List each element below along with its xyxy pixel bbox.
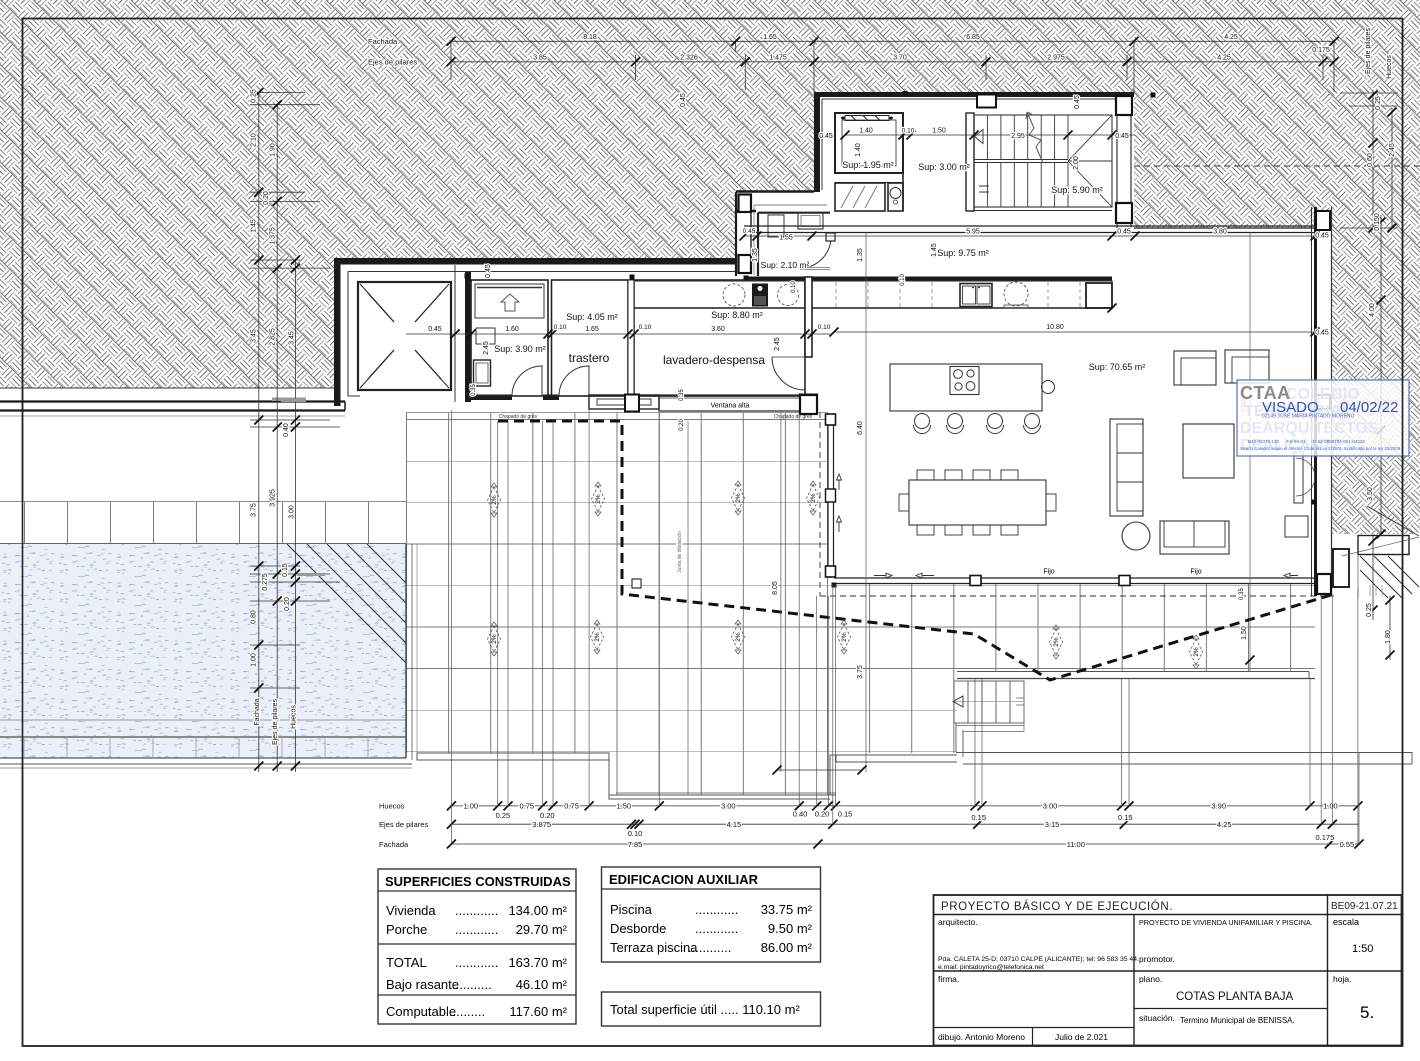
svg-text:promotor.: promotor.	[1139, 954, 1175, 964]
svg-text:1.35: 1.35	[752, 248, 759, 262]
svg-text:2.10: 2.10	[251, 133, 258, 147]
svg-text:............: ............	[455, 955, 498, 970]
svg-text:0.150: 0.150	[1374, 213, 1381, 231]
svg-text:0.10: 0.10	[628, 829, 643, 838]
svg-text:............: ............	[455, 903, 498, 918]
svg-text:Sup: 9.75 m²: Sup: 9.75 m²	[937, 248, 989, 258]
svg-text:1.40: 1.40	[855, 143, 862, 157]
svg-text:0.75: 0.75	[519, 802, 534, 811]
svg-text:firma.: firma.	[938, 974, 959, 984]
svg-text:EDIFICACION AUXILIAR: EDIFICACION AUXILIAR	[609, 872, 759, 887]
svg-text:2%: 2%	[1193, 647, 1200, 657]
svg-text:0.55: 0.55	[1340, 840, 1355, 849]
svg-text:2.326: 2.326	[680, 55, 698, 62]
svg-text:0.35: 0.35	[679, 389, 685, 401]
svg-text:2%: 2%	[841, 632, 848, 642]
svg-text:4.15: 4.15	[727, 820, 742, 829]
svg-text:0.45: 0.45	[1315, 330, 1329, 337]
svg-text:3.45: 3.45	[251, 329, 258, 343]
svg-text:0.45: 0.45	[485, 264, 492, 278]
svg-text:1.40: 1.40	[859, 128, 873, 135]
svg-text:2.45: 2.45	[774, 337, 781, 351]
svg-text:2%: 2%	[735, 632, 742, 642]
svg-text:0.10: 0.10	[900, 274, 906, 286]
svg-text:1.65: 1.65	[585, 326, 599, 333]
svg-text:1.375: 1.375	[270, 227, 277, 245]
svg-text:DEARQUITECTOS: DEARQUITECTOS	[1240, 420, 1379, 437]
svg-text:8.18: 8.18	[583, 34, 597, 41]
svg-text:2.00: 2.00	[1073, 156, 1080, 170]
svg-text:Ejes de pilares: Ejes de pilares	[272, 699, 279, 745]
svg-text:2.45: 2.45	[483, 341, 490, 355]
svg-text:3.70: 3.70	[893, 55, 907, 62]
svg-text:0.25: 0.25	[251, 89, 258, 103]
svg-text:4.25: 4.25	[1217, 55, 1231, 62]
svg-text:2%: 2%	[491, 495, 498, 505]
svg-text:Huecos: Huecos	[379, 802, 405, 811]
svg-text:arquitecto.: arquitecto.	[938, 917, 978, 927]
svg-text:TOTAL: TOTAL	[386, 955, 427, 970]
svg-text:0.40: 0.40	[283, 423, 290, 437]
svg-text:29.70 m²: 29.70 m²	[516, 922, 568, 937]
svg-text:5.: 5.	[1360, 1003, 1374, 1022]
svg-text:2%: 2%	[1053, 637, 1060, 647]
svg-text:COTAS PLANTA BAJA: COTAS PLANTA BAJA	[1176, 991, 1293, 1003]
svg-text:02149 JOSE MARIA PINTADO MOREN: 02149 JOSE MARIA PINTADO MORENO	[1262, 414, 1355, 420]
svg-text:Fijo: Fijo	[1190, 569, 1201, 576]
svg-text:Desborde: Desborde	[610, 921, 666, 936]
svg-text:6.40: 6.40	[857, 421, 864, 435]
svg-text:1.35: 1.35	[857, 248, 864, 262]
svg-text:0.10: 0.10	[554, 324, 567, 331]
svg-text:Sup: 1.95 m²: Sup: 1.95 m²	[842, 160, 894, 170]
svg-text:Sup: 4.05 m²: Sup: 4.05 m²	[566, 312, 618, 322]
svg-text:escala: escala	[1333, 917, 1359, 927]
svg-text:e.mail: pintadoyrico@telefonic: e.mail: pintadoyrico@telefonica.net	[938, 964, 1044, 971]
svg-text:0.10: 0.10	[902, 128, 915, 135]
svg-text:2.95: 2.95	[1011, 133, 1025, 140]
svg-text:Fachada: Fachada	[379, 840, 409, 849]
svg-text:Sup: 8.80 m²: Sup: 8.80 m²	[711, 310, 763, 320]
svg-text:1.45: 1.45	[251, 219, 258, 233]
svg-text:0.45: 0.45	[680, 93, 687, 107]
svg-text:1.80: 1.80	[1385, 630, 1392, 644]
svg-text:1.90: 1.90	[270, 143, 277, 157]
svg-text:86.00 m²: 86.00 m²	[761, 940, 813, 955]
svg-text:8.05: 8.05	[772, 581, 779, 595]
svg-text:0.20: 0.20	[540, 811, 555, 820]
svg-text:1.55: 1.55	[779, 235, 793, 242]
svg-text:4.00: 4.00	[1369, 303, 1376, 317]
svg-text:0.20: 0.20	[284, 597, 291, 611]
svg-text:0.45: 0.45	[1074, 95, 1081, 109]
svg-text:1:50: 1:50	[1352, 943, 1373, 955]
svg-text:BE09-21.07.21: BE09-21.07.21	[1331, 901, 1398, 912]
svg-text:0.15: 0.15	[838, 810, 853, 819]
svg-text:0.35: 0.35	[1239, 588, 1245, 600]
svg-text:0.20: 0.20	[679, 419, 685, 431]
svg-text:Vivienda: Vivienda	[386, 903, 436, 918]
svg-text:10.80: 10.80	[1046, 324, 1064, 331]
svg-text:3.50: 3.50	[1367, 487, 1374, 501]
svg-text:Sup: 70.65 m²: Sup: 70.65 m²	[1089, 362, 1146, 372]
svg-text:2%: 2%	[810, 493, 817, 503]
svg-text:3.80: 3.80	[1213, 229, 1227, 236]
svg-text:0.45: 0.45	[428, 326, 442, 333]
svg-text:Fachada: Fachada	[254, 698, 261, 725]
svg-text:33.75 m²: 33.75 m²	[761, 902, 813, 917]
svg-text:3.00: 3.00	[289, 505, 296, 519]
svg-text:0.20: 0.20	[263, 191, 270, 205]
svg-text:3.925: 3.925	[270, 489, 277, 507]
svg-text:............: ............	[688, 940, 731, 955]
svg-text:2.45: 2.45	[1389, 143, 1396, 157]
svg-text:..........: ..........	[449, 1004, 485, 1019]
svg-text:0.15: 0.15	[1118, 813, 1133, 822]
svg-text:Junta de dilatación: Junta de dilatación	[677, 531, 683, 573]
svg-text:7.85: 7.85	[628, 840, 643, 849]
svg-text:0.45: 0.45	[743, 228, 756, 235]
svg-text:4.25: 4.25	[1217, 820, 1232, 829]
svg-text:Huecos: Huecos	[290, 705, 297, 729]
svg-text:9.50 m²: 9.50 m²	[768, 921, 813, 936]
svg-text:Huecos: Huecos	[1386, 55, 1393, 79]
svg-text:3.75: 3.75	[857, 665, 864, 679]
svg-text:Total superficie útil ..... 11: Total superficie útil ..... 110.10 m²	[610, 1002, 800, 1017]
svg-text:situación.: situación.	[1139, 1013, 1175, 1023]
svg-text:3.00: 3.00	[1043, 802, 1058, 811]
svg-text:Termino Municipal de BENISSA.: Termino Municipal de BENISSA.	[1180, 1016, 1295, 1025]
svg-text:3.75: 3.75	[251, 503, 258, 517]
svg-text:Terraza piscina: Terraza piscina	[610, 940, 698, 955]
svg-text:0.25: 0.25	[1375, 96, 1382, 110]
svg-text:0.15: 0.15	[282, 563, 289, 577]
svg-text:PROYECTO DE VIVIENDA UNIFAMILI: PROYECTO DE VIVIENDA UNIFAMILIAR Y PISCI…	[1139, 918, 1313, 927]
svg-text:Ejes de pilares: Ejes de pilares	[379, 820, 428, 829]
svg-text:1.475: 1.475	[769, 55, 787, 62]
svg-text:0.45: 0.45	[1115, 133, 1129, 140]
svg-text:6.85: 6.85	[966, 34, 980, 41]
svg-text:dibujo. Antonio Moreno: dibujo. Antonio Moreno	[938, 1032, 1025, 1042]
svg-text:0.20: 0.20	[815, 810, 830, 819]
svg-text:............: ............	[695, 902, 738, 917]
svg-text:Fachada: Fachada	[368, 37, 398, 46]
svg-text:Sup: 3.90 m²: Sup: 3.90 m²	[494, 344, 546, 354]
svg-text:Sup: 2.10 m²: Sup: 2.10 m²	[761, 260, 810, 270]
svg-text:1.50: 1.50	[1241, 626, 1248, 640]
svg-text:1.60: 1.60	[505, 326, 519, 333]
svg-text:0.15: 0.15	[971, 813, 986, 822]
svg-text:3.60: 3.60	[711, 326, 725, 333]
svg-text:0.25: 0.25	[496, 811, 511, 820]
svg-text:0.10: 0.10	[639, 324, 652, 331]
svg-text:Chapado de gres: Chapado de gres	[499, 414, 538, 420]
svg-text:hoja.: hoja.	[1333, 974, 1351, 984]
svg-text:0.45: 0.45	[1315, 233, 1329, 240]
svg-text:2%: 2%	[594, 632, 601, 642]
svg-text:0.275: 0.275	[262, 573, 269, 591]
svg-text:5.95: 5.95	[966, 229, 980, 236]
svg-text:1.65: 1.65	[763, 34, 777, 41]
svg-text:Ejes de pilares: Ejes de pilares	[368, 58, 417, 67]
svg-text:1.00: 1.00	[463, 802, 478, 811]
svg-text:trastero: trastero	[569, 351, 610, 365]
svg-text:lavadero-despensa: lavadero-despensa	[663, 353, 765, 367]
svg-text:Visado Colegial según el artíc: Visado Colegial según el artículo 13 de …	[1240, 446, 1401, 451]
svg-text:2%: 2%	[491, 634, 498, 644]
svg-text:2%: 2%	[735, 493, 742, 503]
svg-text:3.00: 3.00	[721, 802, 736, 811]
svg-text:0.35: 0.35	[471, 384, 477, 396]
svg-text:2.975: 2.975	[1047, 55, 1065, 62]
svg-text:B23-08370-130 F.6-64-61: B23-08370-130 F.6-64-61 D-22-0880784-001…	[1248, 439, 1365, 444]
svg-text:2%: 2%	[595, 494, 602, 504]
svg-text:2.825: 2.825	[270, 328, 277, 346]
svg-text:0.25: 0.25	[1366, 603, 1373, 617]
svg-text:Fijo: Fijo	[1043, 569, 1054, 576]
svg-text:plano.: plano.	[1139, 974, 1162, 984]
svg-text:PROYECTO BÁSICO Y DE EJECU: PROYECTO BÁSICO Y DE EJECUCIÓN.	[941, 900, 1173, 913]
svg-text:0.45: 0.45	[819, 133, 833, 140]
svg-text:1.00: 1.00	[251, 653, 258, 667]
svg-text:0.80: 0.80	[251, 610, 258, 624]
svg-text:............: ............	[455, 922, 498, 937]
svg-text:0.40: 0.40	[793, 810, 808, 819]
svg-text:3.15: 3.15	[1045, 820, 1060, 829]
svg-text:1.00: 1.00	[1323, 802, 1338, 811]
svg-text:Bajo rasante: Bajo rasante	[386, 977, 459, 992]
svg-text:3.85: 3.85	[533, 55, 547, 62]
svg-text:11.00: 11.00	[1067, 840, 1085, 849]
svg-text:Piscina: Piscina	[610, 902, 653, 917]
svg-text:Pda. CALETA 25-D; 03710 CALPE: Pda. CALETA 25-D; 03710 CALPE (ALICANTE)…	[938, 956, 1139, 963]
svg-text:0.10: 0.10	[791, 281, 797, 293]
svg-text:...........: ...........	[452, 977, 492, 992]
svg-text:117.60 m²: 117.60 m²	[509, 1004, 567, 1019]
svg-text:Julio de 2.021: Julio de 2.021	[1055, 1032, 1108, 1042]
svg-text:Computable: Computable	[386, 1004, 456, 1019]
svg-text:4.25: 4.25	[1224, 34, 1238, 41]
svg-text:0.175: 0.175	[1316, 833, 1335, 842]
svg-text:0.10: 0.10	[818, 324, 831, 331]
svg-text:3.90: 3.90	[1211, 802, 1226, 811]
svg-text:Ventana alta: Ventana alta	[711, 403, 750, 410]
svg-text:134.00 m²: 134.00 m²	[508, 903, 567, 918]
svg-text:46.10 m²: 46.10 m²	[516, 977, 568, 992]
svg-text:Ejes de pilares: Ejes de pilares	[1365, 28, 1372, 74]
svg-text:163.70 m²: 163.70 m²	[508, 955, 567, 970]
svg-text:SUPERFICIES CONSTRUIDAS: SUPERFICIES CONSTRUIDAS	[385, 874, 571, 889]
svg-text:0.75: 0.75	[564, 802, 579, 811]
svg-text:Sup: 5.90 m²: Sup: 5.90 m²	[1051, 185, 1103, 195]
svg-text:0.175: 0.175	[1312, 47, 1330, 54]
svg-text:Porche: Porche	[386, 922, 427, 937]
svg-text:1.45: 1.45	[931, 243, 938, 257]
svg-text:1.50: 1.50	[932, 128, 946, 135]
svg-text:3.875: 3.875	[532, 820, 551, 829]
svg-text:0.60: 0.60	[1367, 153, 1374, 167]
svg-text:3.45: 3.45	[289, 331, 296, 345]
svg-text:0.45: 0.45	[1117, 229, 1131, 236]
svg-text:............: ............	[695, 921, 738, 936]
svg-text:1.50: 1.50	[616, 802, 631, 811]
svg-text:Sup: 3.00 m²: Sup: 3.00 m²	[918, 162, 970, 172]
